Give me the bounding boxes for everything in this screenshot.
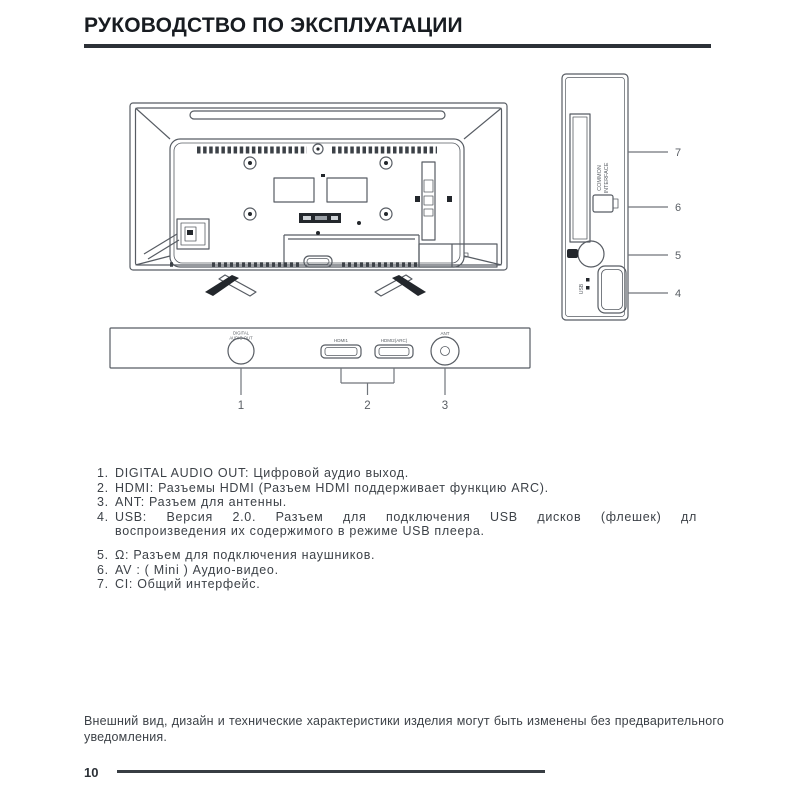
side-panel-body xyxy=(562,74,628,320)
audio-out-label-line2: AUDIO OUT xyxy=(229,336,253,341)
callout-number-6: 6 xyxy=(675,202,681,214)
list-item-text: AV : ( Mini ) Аудио-видео. xyxy=(115,563,697,578)
footer-disclaimer: Внешний вид, дизайн и технические характ… xyxy=(84,714,724,745)
hdmi-port-2 xyxy=(375,345,413,358)
page-number: 10 xyxy=(84,765,98,780)
callout-number-3: 3 xyxy=(442,400,448,412)
speaker-section xyxy=(284,235,419,267)
list-item-text: ANT: Разъем для антенны. xyxy=(115,495,697,510)
list-item: 1. DIGITAL AUDIO OUT: Цифровой аудио вых… xyxy=(97,466,697,481)
list-item-number: 3. xyxy=(97,495,115,510)
list-item: 5. Ω: Разъем для подключения наушников. xyxy=(97,548,697,563)
list-item: 4. USB: Версия 2.0. Разъем для подключен… xyxy=(97,510,697,539)
list-item-number: 6. xyxy=(97,563,115,578)
list-item-number: 1. xyxy=(97,466,115,481)
footer-rule xyxy=(117,770,545,773)
list-item: 6. AV : ( Mini ) Аудио-видео. xyxy=(97,563,697,578)
side-panel-diagram: COMMON INTERFACE USB 7 6 5 4 xyxy=(556,66,706,328)
list-item-text-line1: USB: Версия 2.0. Разъем для подключения … xyxy=(115,510,697,525)
callout-number-1: 1 xyxy=(238,400,244,412)
bottom-panel-body xyxy=(110,328,530,368)
rating-label-left xyxy=(274,178,314,202)
usb-port-label: USB xyxy=(579,283,585,294)
title-underline xyxy=(84,44,711,48)
list-item-number: 5. xyxy=(97,548,115,563)
side-connector-column xyxy=(422,162,435,240)
power-connector-box xyxy=(144,219,209,259)
usb-port xyxy=(598,266,626,313)
list-item: 7. CI: Общий интерфейс. xyxy=(97,577,697,592)
list-item-text: HDMI: Разъемы HDMI (Разъем HDMI поддержи… xyxy=(115,481,697,496)
headphone-icon xyxy=(567,249,578,258)
callout-number-7: 7 xyxy=(675,147,681,159)
bottom-panel-diagram: DIGITAL AUDIO OUT HDMI1 HDMI2(ARC) ANT 1… xyxy=(106,323,546,415)
list-item: 2. HDMI: Разъемы HDMI (Разъем HDMI подде… xyxy=(97,481,697,496)
ci-slot xyxy=(570,114,590,242)
bottom-right-box xyxy=(419,244,497,267)
list-item-text: CI: Общий интерфейс. xyxy=(115,577,697,592)
callout-lines xyxy=(628,152,668,293)
list-item-text: USB: Версия 2.0. Разъем для подключения … xyxy=(115,510,697,539)
ant-jack xyxy=(431,337,459,365)
rating-label-right xyxy=(327,178,367,202)
tv-rear-view-diagram xyxy=(112,92,532,304)
callout-number-5: 5 xyxy=(675,250,681,262)
av-mini-port xyxy=(593,195,618,212)
ant-label: ANT xyxy=(441,331,450,336)
headphone-jack xyxy=(578,241,604,267)
list-item-number: 4. xyxy=(97,510,115,539)
hdmi1-label: HDMI1 xyxy=(334,338,348,343)
hdmi-port-1 xyxy=(321,345,361,358)
callout-lines xyxy=(241,368,445,395)
list-item: 3. ANT: Разъем для антенны. xyxy=(97,495,697,510)
ci-slot-label-line1: COMMON xyxy=(597,165,603,191)
digital-audio-out-jack xyxy=(228,338,254,364)
list-item-text: DIGITAL AUDIO OUT: Цифровой аудио выход. xyxy=(115,466,697,481)
callout-number-2: 2 xyxy=(364,400,370,412)
list-item-text-line2: воспроизведения их содержимого в режиме … xyxy=(115,524,697,539)
list-item-number: 7. xyxy=(97,577,115,592)
list-item-number: 2. xyxy=(97,481,115,496)
manual-page: РУКОВОДСТВО ПО ЭКСПЛУАТАЦИИ xyxy=(0,0,800,800)
handle-slot xyxy=(190,111,445,119)
list-item-text: Ω: Разъем для подключения наушников. xyxy=(115,548,697,563)
connector-list: 1. DIGITAL AUDIO OUT: Цифровой аудио вых… xyxy=(97,466,697,592)
callout-number-4: 4 xyxy=(675,288,681,300)
hdmi2-label: HDMI2(ARC) xyxy=(381,338,408,343)
page-title: РУКОВОДСТВО ПО ЭКСПЛУАТАЦИИ xyxy=(84,14,463,38)
ci-slot-label-line2: INTERFACE xyxy=(604,162,610,193)
back-panel xyxy=(170,139,464,267)
